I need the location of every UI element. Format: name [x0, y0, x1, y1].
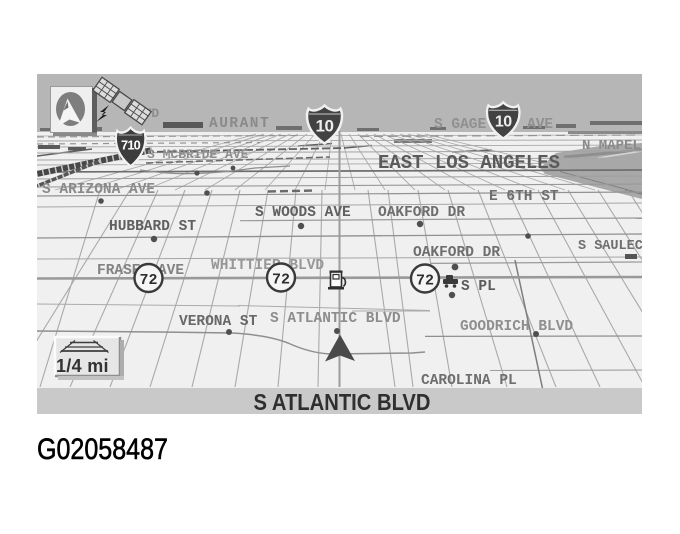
svg-text:72: 72 — [139, 272, 157, 289]
svg-text:AVE: AVE — [527, 117, 553, 133]
svg-text:S SAULEC: S SAULEC — [578, 239, 643, 254]
svg-text:AURANT: AURANT — [209, 116, 270, 132]
svg-text:OAKFORD DR: OAKFORD DR — [413, 245, 500, 261]
svg-text:1/4 mi: 1/4 mi — [56, 356, 109, 376]
svg-text:VERONA ST: VERONA ST — [179, 314, 258, 330]
svg-text:72: 72 — [272, 272, 290, 289]
svg-text:E 6TH ST: E 6TH ST — [489, 189, 559, 205]
svg-text:CAROLINA PL: CAROLINA PL — [421, 373, 517, 389]
svg-text:710: 710 — [121, 138, 141, 153]
svg-text:S ATLANTIC BLVD: S ATLANTIC BLVD — [254, 389, 431, 415]
svg-text:72: 72 — [416, 273, 434, 290]
svg-text:OAKFORD DR: OAKFORD DR — [378, 205, 465, 221]
svg-text:S WOODS AVE: S WOODS AVE — [255, 205, 351, 221]
svg-text:S PL: S PL — [461, 279, 496, 295]
svg-text:S ATLANTIC BLVD: S ATLANTIC BLVD — [270, 311, 401, 327]
svg-text:GOODRICH BLVD: GOODRICH BLVD — [460, 319, 573, 335]
svg-text:N MAPEL: N MAPEL — [582, 138, 641, 154]
svg-text:S ARIZONA AVE: S ARIZONA AVE — [42, 182, 155, 198]
svg-text:10: 10 — [495, 114, 512, 131]
svg-text:S MCBRIDE AVE: S MCBRIDE AVE — [147, 147, 249, 162]
svg-text:10: 10 — [316, 117, 334, 136]
svg-text:S GAGE: S GAGE — [434, 117, 487, 133]
svg-text:HUBBARD ST: HUBBARD ST — [109, 219, 196, 235]
svg-text:G02058487: G02058487 — [37, 433, 168, 466]
svg-text:EAST LOS ANGELES: EAST LOS ANGELES — [378, 152, 560, 174]
